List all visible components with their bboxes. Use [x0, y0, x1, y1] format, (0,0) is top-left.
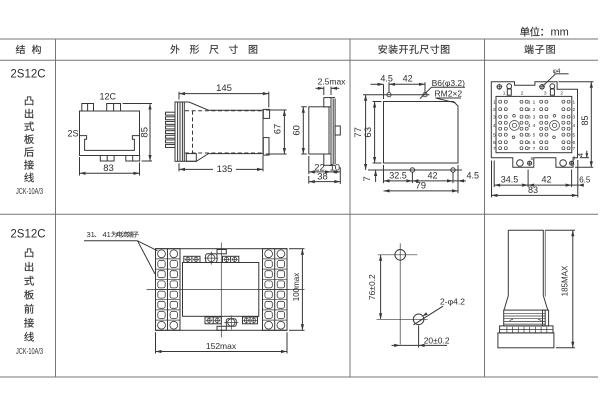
svg-text:2: 2: [560, 91, 563, 97]
svg-text:79: 79: [416, 181, 427, 192]
svg-text:6: 6: [528, 140, 531, 146]
svg-text:1: 1: [493, 100, 496, 106]
svg-text:2S12C: 2S12C: [10, 69, 45, 81]
svg-text:6: 6: [493, 140, 496, 146]
svg-text:63: 63: [363, 127, 374, 138]
svg-text:5: 5: [533, 133, 536, 139]
svg-text:2: 2: [521, 91, 524, 97]
svg-text:4: 4: [533, 123, 536, 129]
svg-text:83: 83: [528, 185, 538, 195]
svg-text:5: 5: [528, 133, 531, 139]
svg-text:76±0.2: 76±0.2: [367, 274, 377, 300]
svg-text:7: 7: [572, 146, 575, 152]
svg-text:4.5: 4.5: [467, 171, 480, 181]
svg-text:85: 85: [580, 115, 590, 125]
svg-text:2S12C: 2S12C: [10, 229, 45, 241]
svg-text:3: 3: [572, 115, 575, 121]
svg-text:1: 1: [528, 100, 531, 106]
svg-text:41: 41: [103, 230, 111, 239]
svg-text:3: 3: [493, 115, 496, 121]
svg-text:RM2×2: RM2×2: [434, 89, 462, 99]
svg-text:4: 4: [493, 123, 496, 129]
svg-text:JCK-10A/3: JCK-10A/3: [16, 346, 43, 356]
svg-text:100max: 100max: [292, 273, 301, 301]
svg-text:3: 3: [533, 115, 536, 121]
svg-text:85: 85: [139, 127, 150, 138]
svg-text:6.5: 6.5: [579, 176, 591, 185]
svg-text:152max: 152max: [206, 341, 237, 351]
svg-text:31: 31: [87, 230, 95, 239]
svg-text:20±0.2: 20±0.2: [424, 336, 450, 346]
svg-text:7: 7: [528, 146, 531, 152]
svg-text:2: 2: [572, 107, 575, 113]
svg-text:2.5max: 2.5max: [318, 77, 347, 87]
svg-text:7: 7: [493, 146, 496, 152]
svg-text:34.5: 34.5: [501, 175, 519, 185]
svg-text:3: 3: [544, 91, 547, 97]
svg-text:2: 2: [533, 107, 536, 113]
svg-text:7: 7: [362, 176, 373, 181]
svg-text:60: 60: [292, 125, 303, 136]
svg-text:3: 3: [528, 115, 531, 121]
svg-text:42: 42: [541, 175, 551, 185]
svg-text:2: 2: [528, 107, 531, 113]
svg-text:2S: 2S: [67, 129, 78, 139]
svg-text:4: 4: [572, 123, 575, 129]
svg-text:83: 83: [103, 163, 114, 174]
svg-text:145: 145: [216, 83, 232, 94]
svg-text:32.5: 32.5: [389, 171, 407, 181]
svg-text:1: 1: [572, 100, 575, 106]
svg-text:8: 8: [572, 155, 575, 161]
svg-text:4: 4: [528, 123, 531, 129]
svg-text:5: 5: [572, 133, 575, 139]
svg-text:B6(φ3.2): B6(φ3.2): [432, 78, 466, 88]
svg-text:JCK-10A/3: JCK-10A/3: [16, 186, 43, 196]
svg-text:6: 6: [572, 140, 575, 146]
svg-text:42: 42: [427, 171, 437, 181]
svg-text:38: 38: [317, 171, 328, 182]
svg-text:6: 6: [533, 140, 536, 146]
svg-text:2: 2: [493, 107, 496, 113]
svg-text:12C: 12C: [99, 92, 116, 102]
svg-text:10: 10: [330, 162, 341, 173]
svg-text:7: 7: [533, 146, 536, 152]
svg-text:135: 135: [217, 164, 233, 175]
svg-text:mm: mm: [551, 27, 569, 39]
svg-text:5: 5: [493, 133, 496, 139]
svg-text:42: 42: [403, 73, 413, 83]
svg-text:1: 1: [533, 100, 536, 106]
svg-text:2-φ4.2: 2-φ4.2: [440, 297, 465, 307]
svg-text:1: 1: [503, 91, 506, 97]
svg-text:185MAX: 185MAX: [561, 265, 570, 296]
svg-text:4: 4: [576, 153, 585, 157]
svg-text:67: 67: [273, 124, 284, 135]
svg-text:8: 8: [530, 156, 533, 162]
svg-text:4.5: 4.5: [380, 73, 393, 83]
